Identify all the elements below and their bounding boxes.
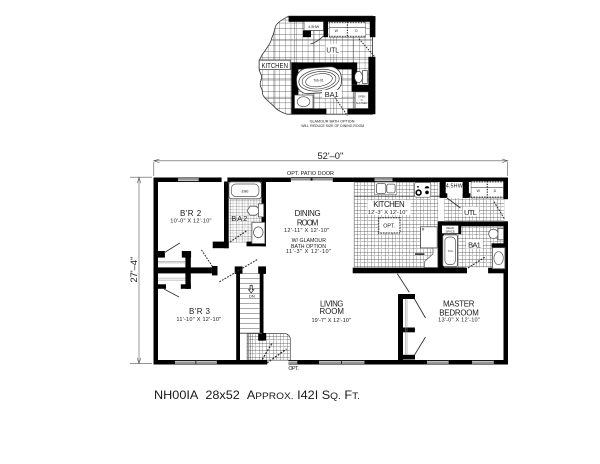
svg-text:KITCHEN: KITCHEN (373, 200, 405, 209)
svg-text:10'-0" X 12'-10": 10'-0" X 12'-10" (170, 218, 211, 224)
svg-text:ROOM: ROOM (319, 307, 344, 316)
svg-text:BA2: BA2 (231, 214, 247, 223)
svg-text:UTL: UTL (464, 208, 477, 217)
svg-text:Tub: Tub (448, 249, 453, 253)
svg-text:12'-11" X 12'-10": 12'-11" X 12'-10" (284, 228, 329, 234)
svg-text:OPT.: OPT. (383, 224, 395, 230)
svg-text:WILL REDUCE SIZE OF DINING ROO: WILL REDUCE SIZE OF DINING ROOM (301, 124, 364, 128)
svg-text:KITCHEN: KITCHEN (261, 61, 288, 70)
svg-text:Elite: Elite (242, 190, 249, 194)
svg-text:BEDROOM: BEDROOM (439, 309, 479, 318)
svg-text:DINING: DINING (295, 209, 321, 218)
svg-text:D: D (494, 189, 497, 193)
svg-text:11'-3" X 12'-10": 11'-3" X 12'-10" (286, 249, 331, 255)
svg-text:BA1: BA1 (468, 240, 481, 249)
svg-text:GLAMOUR BATH OPTION: GLAMOUR BATH OPTION (310, 118, 355, 123)
svg-text:MASTER: MASTER (443, 299, 475, 308)
svg-text:BA1: BA1 (325, 90, 339, 99)
svg-text:SHOWER: SHOWER (356, 101, 368, 105)
svg-text:52'–0": 52'–0" (318, 151, 344, 161)
svg-text:B'R 2: B'R 2 (180, 209, 202, 218)
svg-text:19'-7" X 12'-10": 19'-7" X 12'-10" (311, 318, 351, 324)
svg-text:4.5HW: 4.5HW (446, 184, 464, 190)
svg-text:OPT.: OPT. (288, 366, 299, 372)
svg-text:DN: DN (249, 294, 255, 299)
svg-text:4.5HW: 4.5HW (308, 25, 320, 29)
svg-text:UTL: UTL (326, 46, 339, 55)
svg-text:NH00IA 28x52 APPROX. I42I SQ: NH00IA 28x52 APPROX. I42I SQ. FT. (154, 388, 360, 402)
svg-text:13'-0" X 12'-10": 13'-0" X 12'-10" (438, 318, 480, 324)
svg-text:B'R 3: B'R 3 (189, 307, 211, 316)
svg-text:12'-3" X 12'-10": 12'-3" X 12'-10" (368, 210, 408, 216)
svg-text:ROOM: ROOM (297, 218, 319, 227)
svg-text:11'-10" X 12'-10": 11'-10" X 12'-10" (176, 317, 221, 323)
svg-text:SPACE: SPACE (445, 229, 454, 233)
svg-text:Tub-01: Tub-01 (313, 79, 323, 83)
svg-text:OPT. PATIO DOOR: OPT. PATIO DOOR (287, 171, 334, 177)
svg-text:27'–4": 27'–4" (129, 257, 139, 283)
svg-text:W: W (477, 189, 481, 193)
